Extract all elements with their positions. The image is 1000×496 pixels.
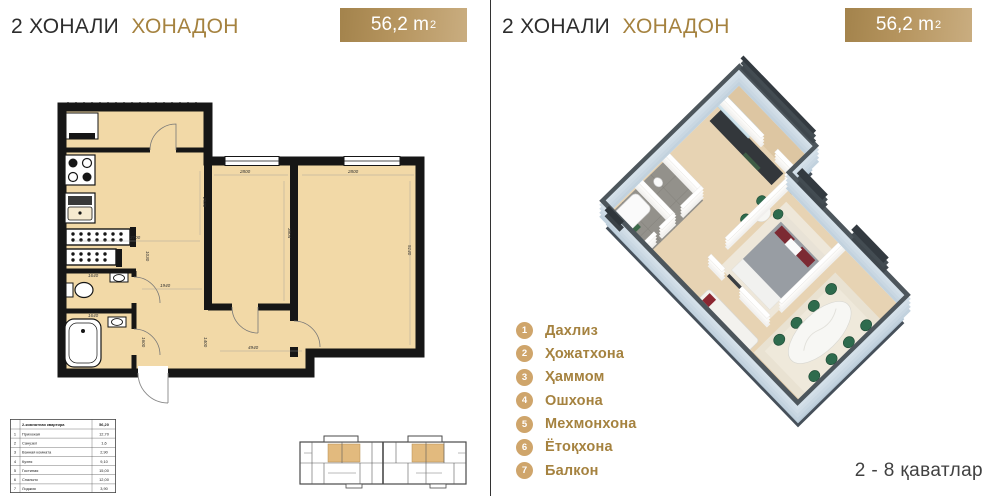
bath-sink-icon bbox=[108, 317, 126, 327]
svg-text:5: 5 bbox=[14, 468, 16, 473]
svg-text:2: 2 bbox=[14, 441, 16, 446]
legend-label: Мехмонхона bbox=[545, 416, 637, 432]
svg-text:9,10: 9,10 bbox=[100, 459, 108, 464]
legend-number-badge: 7 bbox=[516, 462, 533, 479]
table-header-value: 56,20 bbox=[99, 422, 109, 427]
legend-number-badge: 2 bbox=[516, 345, 533, 362]
brochure-page: 2 ХОНАЛИ ХОНАДОН 56,2 m2 bbox=[0, 0, 1000, 496]
page-title: 2 ХОНАЛИ ХОНАДОН bbox=[502, 15, 730, 39]
dim-label: 2530 bbox=[202, 196, 207, 208]
legend-item: 1 Дахлиз bbox=[516, 322, 637, 339]
dim-label: 2800 bbox=[239, 169, 251, 174]
area-value: 56,2 m bbox=[876, 14, 934, 36]
svg-text:1: 1 bbox=[14, 431, 16, 436]
svg-text:Кухня: Кухня bbox=[22, 459, 32, 464]
legend-item: 2 Ҳожатхона bbox=[516, 345, 637, 362]
svg-text:Лоджия: Лоджия bbox=[22, 486, 36, 491]
svg-text:Гостиная: Гостиная bbox=[22, 468, 38, 473]
page-title: 2 ХОНАЛИ ХОНАДОН bbox=[11, 15, 239, 39]
kitchen-sink-icon bbox=[65, 193, 95, 223]
window bbox=[344, 157, 400, 166]
dim-label: 3804 bbox=[287, 228, 292, 239]
toilet-icon bbox=[66, 283, 93, 298]
floor-plan-2d: 3700 2530 2800 3804 2800 5140 1940 1030 … bbox=[52, 93, 444, 405]
dim-label: 1600 bbox=[141, 337, 146, 348]
floors-note: 2 - 8 қаватлар bbox=[855, 460, 983, 482]
window bbox=[225, 157, 279, 166]
svg-text:2,90: 2,90 bbox=[100, 450, 108, 455]
legend-label: Ҳожатхона bbox=[545, 346, 624, 362]
highlighted-unit bbox=[328, 444, 360, 462]
legend-label: Балкон bbox=[545, 463, 599, 479]
panel-2d-plan: 2 ХОНАЛИ ХОНАДОН 56,2 m2 bbox=[0, 0, 490, 496]
dim-label: 1940 bbox=[160, 283, 171, 288]
title-prefix: 2 ХОНАЛИ bbox=[502, 15, 610, 38]
legend-number-badge: 3 bbox=[516, 369, 533, 386]
svg-text:3,90: 3,90 bbox=[100, 486, 108, 491]
legend-number-badge: 6 bbox=[516, 439, 533, 456]
table-header-label: 2-комнатная квартира bbox=[22, 422, 65, 427]
legend-label: Ошхона bbox=[545, 393, 603, 409]
area-badge: 56,2 m2 bbox=[340, 8, 467, 42]
area-sup: 2 bbox=[935, 19, 941, 31]
room-legend: 1 Дахлиз 2 Ҳожатхона 3 Ҳаммом 4 Ошхона 5… bbox=[516, 322, 637, 486]
area-table: 2-комнатная квартира 56,20 1Прихожая12,7… bbox=[10, 419, 116, 493]
entry-gap bbox=[138, 366, 168, 379]
legend-label: Ётоқхона bbox=[545, 439, 613, 455]
svg-text:12,00: 12,00 bbox=[99, 477, 110, 482]
svg-text:12,70: 12,70 bbox=[99, 431, 110, 436]
legend-item: 4 Ошхона bbox=[516, 392, 637, 409]
svg-text:7: 7 bbox=[14, 486, 16, 491]
legend-item: 7 Балкон bbox=[516, 462, 637, 479]
bathtub-icon bbox=[65, 319, 101, 367]
legend-label: Ҳаммом bbox=[545, 369, 605, 385]
wc-sink-icon bbox=[110, 273, 128, 282]
building-key-plan bbox=[298, 429, 468, 491]
title-accent: ХОНАДОН bbox=[125, 15, 238, 38]
svg-text:Ванная комната: Ванная комната bbox=[22, 450, 52, 455]
svg-text:6: 6 bbox=[14, 477, 16, 482]
area-badge: 56,2 m2 bbox=[845, 8, 972, 42]
svg-text:Спальня: Спальня bbox=[22, 477, 38, 482]
balcony-bench bbox=[66, 113, 98, 139]
title-prefix: 2 ХОНАЛИ bbox=[11, 15, 119, 38]
dim-label: 2800 bbox=[347, 169, 359, 174]
dim-label: 3700 bbox=[130, 235, 141, 240]
legend-item: 6 Ётоқхона bbox=[516, 439, 637, 456]
legend-number-badge: 4 bbox=[516, 392, 533, 409]
panel-3d-plan: 2 ХОНАЛИ ХОНАДОН 56,2 m2 bbox=[490, 0, 1000, 496]
svg-text:3: 3 bbox=[14, 450, 16, 455]
svg-text:Санузел: Санузел bbox=[22, 441, 37, 446]
legend-label: Дахлиз bbox=[545, 323, 598, 339]
title-accent: ХОНАДОН bbox=[616, 15, 729, 38]
legend-item: 3 Ҳаммом bbox=[516, 369, 637, 386]
dim-label: 1030 bbox=[145, 251, 150, 262]
legend-number-badge: 1 bbox=[516, 322, 533, 339]
legend-item: 5 Мехмонхона bbox=[516, 416, 637, 433]
svg-text:Прихожая: Прихожая bbox=[22, 431, 40, 436]
area-value: 56,2 m bbox=[371, 14, 429, 36]
dim-label: 1400 bbox=[203, 337, 208, 348]
dim-label: 1640 bbox=[88, 273, 99, 278]
dim-label: 4940 bbox=[248, 345, 259, 350]
svg-text:1,6: 1,6 bbox=[101, 441, 106, 446]
stove-icon bbox=[65, 155, 95, 185]
highlighted-unit bbox=[412, 444, 444, 462]
svg-text:15,00: 15,00 bbox=[99, 468, 110, 473]
legend-number-badge: 5 bbox=[516, 416, 533, 433]
area-sup: 2 bbox=[430, 19, 436, 31]
dim-label: 5140 bbox=[407, 245, 412, 256]
dim-label: 1640 bbox=[88, 313, 99, 318]
